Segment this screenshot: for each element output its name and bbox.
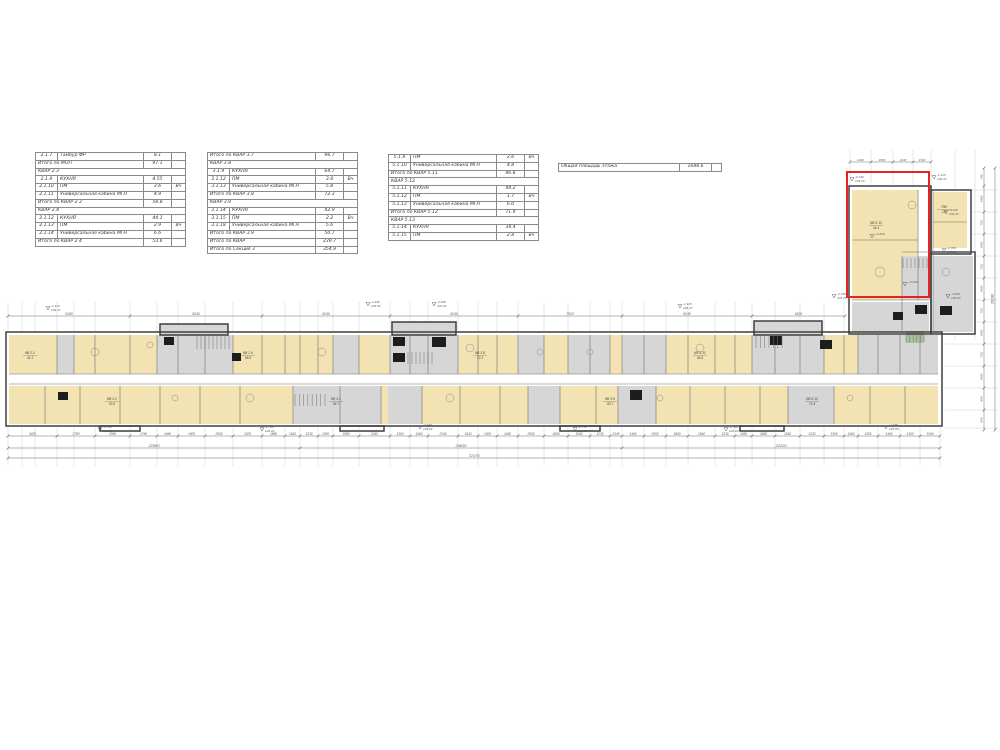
table-cell: 2.1.11 bbox=[36, 191, 58, 199]
area-table: 2.1.7Тамбур ФР8.1Итого по МОП97.1КВАР 2.… bbox=[35, 152, 185, 247]
table-row: 2.1.14Универсальная кабина МГН6.6 bbox=[36, 230, 186, 238]
area-table: Общая площадь этажа1688.6 bbox=[558, 163, 721, 172]
table-cell bbox=[344, 207, 358, 215]
table-cell: 3.1.13 bbox=[208, 184, 230, 192]
table-row: 3.1.9КУХНЯ64.7 bbox=[208, 168, 358, 176]
table-cell: 53.6 bbox=[144, 238, 172, 246]
dimension-label: 1230 bbox=[596, 432, 603, 436]
room-label: КВ 5.12 bbox=[806, 397, 818, 401]
table-row: 2.1.9КУХНЯ4.55 bbox=[36, 176, 186, 184]
core-block bbox=[858, 335, 938, 374]
dimension-label: 1890 bbox=[879, 158, 886, 162]
dimension-label: 1540 bbox=[289, 432, 296, 436]
table-cell bbox=[525, 209, 539, 217]
table-cell: Итого по КВАР 2.4 bbox=[36, 238, 144, 246]
table-cell bbox=[525, 170, 539, 178]
table-cell: 97.1 bbox=[144, 160, 172, 168]
table-cell: Тамбур ФР bbox=[58, 153, 144, 161]
dimension-label: 690 bbox=[980, 396, 984, 401]
table-cell: Итого по КВАР 3.7 bbox=[208, 153, 316, 161]
table-row: Итого по МОП97.1 bbox=[36, 160, 186, 168]
table-row: 5.1.10Универсальная кабина МГН4.8 bbox=[389, 162, 539, 170]
elevation-value: 104.47 bbox=[683, 306, 693, 310]
dimension-label: 2050 bbox=[650, 432, 658, 436]
table-cell: 5.1.10 bbox=[389, 162, 411, 170]
core-block bbox=[160, 324, 228, 335]
table-cell: 5.1.9 bbox=[389, 155, 411, 163]
dimension-label: 1490 bbox=[415, 432, 422, 436]
room-label: КВ 5.11 bbox=[694, 351, 706, 355]
dimension-label: 9180 bbox=[65, 312, 73, 316]
dimension-label: 3140 bbox=[612, 432, 619, 436]
table-cell: Универсальная кабина МГН bbox=[58, 230, 144, 238]
table-cell: Итого по КВАР 5.12 bbox=[389, 209, 497, 217]
table-cell bbox=[172, 160, 186, 168]
table-cell: КВАР 5.12 bbox=[389, 178, 539, 186]
table-cell: Универсальная кабина МГН bbox=[411, 162, 497, 170]
table-row: Итого по КВАР 5.1271.9 bbox=[389, 209, 539, 217]
table-row: 2.1.10ПМ3.6Вч bbox=[36, 184, 186, 192]
table-cell: КУХНЯ bbox=[411, 186, 497, 194]
table-row: 5.1.11КУХНЯ44.2 bbox=[389, 186, 539, 194]
building-outline bbox=[340, 426, 384, 431]
dimension-label: 750 bbox=[980, 220, 984, 225]
stair-green-block bbox=[906, 331, 924, 343]
table-cell: 354.9 bbox=[316, 246, 344, 254]
shaft-square bbox=[58, 392, 68, 400]
dimension-label: 3420 bbox=[980, 373, 984, 380]
dimension-label: 6520 bbox=[795, 312, 803, 316]
dimension-label: 1890 bbox=[673, 432, 680, 436]
dimension-label: 750 bbox=[980, 308, 984, 313]
dimension-label: 1490 bbox=[847, 432, 854, 436]
dimension-label: 1490 bbox=[885, 432, 892, 436]
dimension-label: 9240 bbox=[322, 312, 330, 316]
shaft-square bbox=[820, 340, 832, 349]
room-label: КВ 2.1 bbox=[25, 351, 35, 355]
dimension-label: 1300 bbox=[322, 432, 329, 436]
table-cell: 2.8 bbox=[497, 232, 525, 240]
elevation-value: 104.47 bbox=[51, 308, 61, 312]
shaft-square bbox=[893, 312, 903, 320]
table-cell: 3.1.15 bbox=[208, 215, 230, 223]
table-cell: Итого по МОП bbox=[36, 160, 144, 168]
elevation-value: 103.21 bbox=[947, 250, 957, 254]
table-row: Итого по КВАР 3.796.7 bbox=[208, 153, 358, 161]
table-cell: 2.9 bbox=[144, 223, 172, 231]
table-cell: 96.8 bbox=[497, 170, 525, 178]
table-row: Итого по КВАР 3.950.7 bbox=[208, 230, 358, 238]
dimension-label: 72170 bbox=[468, 453, 480, 458]
dimension-label: 1230 bbox=[721, 432, 728, 436]
shaft-square bbox=[940, 306, 952, 315]
dimension-label: 1490 bbox=[629, 432, 636, 436]
room-label: КВ 3.8 bbox=[475, 351, 485, 355]
table-row: Итого по КВАР 3.872.3 bbox=[208, 191, 358, 199]
room-label: КВ 2.2 bbox=[107, 397, 117, 401]
table-cell: 3.8 bbox=[316, 176, 344, 184]
elevation-mark-icon bbox=[432, 303, 436, 306]
table-cell: Итого по КВАР bbox=[208, 238, 316, 246]
table-row: Итого по КВАР 2.358.8 bbox=[36, 199, 186, 207]
dimension-label: 9240 bbox=[450, 312, 458, 316]
floor-plan-sheet: 3420278020501790149019002050220018901540… bbox=[0, 0, 1000, 750]
room-area: 96.7 bbox=[333, 402, 339, 406]
table-cell: Универсальная кабина МГН bbox=[230, 184, 316, 192]
shaft-square bbox=[630, 390, 642, 400]
table-row: 3.1.15ПМ2.2Вч bbox=[208, 215, 358, 223]
elevation-value: 103.43 bbox=[949, 212, 959, 216]
table-cell: Итого по КВАР 5.11 bbox=[389, 170, 497, 178]
core-block bbox=[528, 386, 560, 424]
table-row: 5.1.13Универсальная кабина МГН6.0 bbox=[389, 201, 539, 209]
table-cell: 2.1.12 bbox=[36, 215, 58, 223]
dimension-label: 7520 bbox=[566, 312, 574, 316]
table-cell: 3.1.18 bbox=[208, 223, 230, 231]
area-table: Итого по КВАР 3.796.7КВАР 3.83.1.9КУХНЯ6… bbox=[207, 152, 357, 254]
room-area: 58.8 bbox=[245, 356, 251, 360]
elevation-value: 103.26 bbox=[103, 429, 113, 433]
elevation-value: 103.54 bbox=[437, 304, 447, 308]
room-area: 71.9 bbox=[809, 402, 815, 406]
table-cell bbox=[344, 238, 358, 246]
dimension-label: 2240 bbox=[438, 432, 446, 436]
table-cell: Универсальная кабина МГН bbox=[58, 191, 144, 199]
elevation-mark-icon bbox=[724, 428, 728, 431]
elevation-mark-icon bbox=[932, 176, 936, 179]
shaft-square bbox=[915, 305, 927, 314]
table-cell bbox=[712, 164, 722, 172]
elevation-value: 104.47 bbox=[937, 177, 947, 181]
table-cell: Универсальная кабина МГН bbox=[411, 201, 497, 209]
table-cell: 2.1.7 bbox=[36, 153, 58, 161]
dimension-label: 1900 bbox=[188, 432, 195, 436]
table-cell: 3.1.14 bbox=[208, 207, 230, 215]
floor-plan-svg: 3420278020501790149019002050220018901540… bbox=[0, 0, 1000, 750]
core-block bbox=[752, 335, 824, 374]
table-cell bbox=[344, 230, 358, 238]
table-cell bbox=[344, 168, 358, 176]
table-cell: Вч bbox=[172, 184, 186, 192]
dimension-label: 1890 bbox=[760, 432, 767, 436]
elevation-value: 103.25 bbox=[578, 429, 588, 433]
table-row: КВАР 5.12 bbox=[389, 178, 539, 186]
dimension-label: 2240 bbox=[370, 432, 378, 436]
room-area: 72.3 bbox=[477, 356, 483, 360]
table-row: 5.1.9ПМ2.6Вч bbox=[389, 155, 539, 163]
table-row: КВАР 3.8 bbox=[208, 160, 358, 168]
table-row: КВАР 5.13 bbox=[389, 217, 539, 225]
elevation-value: 103.54 bbox=[371, 304, 381, 308]
table-cell: ПМ bbox=[411, 193, 497, 201]
table-cell: Итого по КВАР 3.9 bbox=[208, 230, 316, 238]
dimension-label: 1540 bbox=[926, 432, 933, 436]
table-cell: 3.1.12 bbox=[208, 176, 230, 184]
table-cell: КВАР 3.8 bbox=[208, 160, 358, 168]
table-row: 3.1.18Универсальная кабина МГН5.6 bbox=[208, 223, 358, 231]
dimension-label: 1890 bbox=[342, 432, 349, 436]
table-cell: Общая площадь этажа bbox=[559, 164, 680, 172]
table-cell bbox=[525, 201, 539, 209]
table-row: КВАР 2.3 bbox=[36, 168, 186, 176]
core-block bbox=[333, 335, 359, 374]
table-cell bbox=[344, 246, 358, 254]
dimension-label: 2050 bbox=[214, 432, 222, 436]
table-cell: 6.0 bbox=[497, 201, 525, 209]
shaft-square bbox=[393, 337, 405, 346]
shaft-square bbox=[232, 353, 241, 361]
table-cell: 34.4 bbox=[497, 225, 525, 233]
shaft-square bbox=[432, 337, 446, 347]
table-cell: Универсальная кабина МГН bbox=[230, 223, 316, 231]
dimension-label: 1300 bbox=[484, 432, 491, 436]
dimension-label: 3420 bbox=[980, 195, 984, 202]
table-row: 2.1.11Универсальная кабина МГН4.9 bbox=[36, 191, 186, 199]
room-label: КВ 3.9 bbox=[605, 397, 615, 401]
table-cell: КВАР 2.4 bbox=[36, 207, 186, 215]
dimension-label: 9240 bbox=[192, 312, 200, 316]
table-cell bbox=[344, 184, 358, 192]
table-cell bbox=[525, 186, 539, 194]
elevation-mark-icon bbox=[46, 307, 50, 310]
room-label: КВ 3.1 bbox=[331, 397, 341, 401]
table-cell bbox=[172, 153, 186, 161]
room-area: 44.1 bbox=[27, 356, 33, 360]
table-cell: 5.8 bbox=[316, 184, 344, 192]
shaft-square bbox=[393, 353, 405, 362]
table-cell: КУХНЯ bbox=[58, 215, 144, 223]
table-row: 3.1.13Универсальная кабина МГН5.8 bbox=[208, 184, 358, 192]
table-row: 3.1.12ПМ3.8Вч bbox=[208, 176, 358, 184]
table-row: 5.1.14КУХНЯ34.4 bbox=[389, 225, 539, 233]
dimension-label: 1540 bbox=[464, 432, 471, 436]
table-cell: 8.1 bbox=[144, 153, 172, 161]
dimension-label: 1540 bbox=[698, 432, 705, 436]
table-row: Итого по КВАР239.7 bbox=[208, 238, 358, 246]
table-cell bbox=[172, 230, 186, 238]
table-cell: 2.2 bbox=[316, 215, 344, 223]
table-cell: 42.9 bbox=[316, 207, 344, 215]
dimension-label: 1540 bbox=[784, 432, 791, 436]
elevation-value: 102.63 bbox=[951, 296, 961, 300]
table-cell bbox=[344, 191, 358, 199]
table-cell: 4.55 bbox=[144, 176, 172, 184]
table-cell: 44.1 bbox=[144, 215, 172, 223]
table-cell bbox=[172, 191, 186, 199]
table-cell: ПМ bbox=[411, 232, 497, 240]
table-cell: Вч bbox=[525, 232, 539, 240]
elevation-value: 103.24 bbox=[729, 429, 739, 433]
core-block bbox=[392, 322, 456, 335]
table-row: 5.1.15ПМ2.8Вч bbox=[389, 232, 539, 240]
elevation-value: 103.55 bbox=[889, 427, 899, 431]
table-cell: 50.7 bbox=[316, 230, 344, 238]
table-cell: 5.1.12 bbox=[389, 193, 411, 201]
room-label: КВ 2.4 bbox=[243, 351, 253, 355]
table-cell: КУХНЯ bbox=[411, 225, 497, 233]
table-cell: 71.9 bbox=[497, 209, 525, 217]
table-cell: 3.6 bbox=[144, 184, 172, 192]
dimension-label: 640 bbox=[980, 417, 984, 422]
table-cell bbox=[344, 153, 358, 161]
dimension-label: 9240 bbox=[683, 312, 691, 316]
table-cell bbox=[172, 176, 186, 184]
shaft-square bbox=[164, 337, 174, 345]
table-cell: 58.8 bbox=[144, 199, 172, 207]
table-row: 3.1.14КУХНЯ42.9 bbox=[208, 207, 358, 215]
table-cell: 5.1.13 bbox=[389, 201, 411, 209]
dimension-label: 1300 bbox=[396, 432, 403, 436]
table-cell bbox=[172, 199, 186, 207]
table-cell: 239.7 bbox=[316, 238, 344, 246]
table-cell: КУХНЯ bbox=[230, 207, 316, 215]
dimension-label: 1300 bbox=[830, 432, 837, 436]
dimension-label: 2780 bbox=[71, 432, 79, 436]
table-cell: 4.8 bbox=[497, 162, 525, 170]
table-cell: КВАР 3.9 bbox=[208, 199, 358, 207]
dimension-label: 1490 bbox=[504, 432, 511, 436]
table-cell: 5.1.11 bbox=[389, 186, 411, 194]
table-cell: Вч bbox=[525, 193, 539, 201]
elevation-mark-icon bbox=[832, 295, 836, 298]
dimension-label: 1490 bbox=[740, 432, 747, 436]
dimension-label: 740 bbox=[980, 174, 984, 179]
dimension-label: 1790 bbox=[140, 432, 147, 436]
dimension-label: 2200 bbox=[243, 432, 251, 436]
table-cell: 1.7 bbox=[497, 193, 525, 201]
table-cell: 2.1.14 bbox=[36, 230, 58, 238]
table-cell: ПМ bbox=[230, 176, 316, 184]
dimension-label: 1890 bbox=[552, 432, 559, 436]
dimension-label: 2050 bbox=[526, 432, 534, 436]
elevation-value: 103.24 bbox=[265, 429, 275, 433]
table-row: 2.1.13ПМ2.9Вч bbox=[36, 223, 186, 231]
table-row: 2.1.7Тамбур ФР8.1 bbox=[36, 153, 186, 161]
dimension-label: 3420 bbox=[980, 285, 984, 292]
room-area: 96.8 bbox=[697, 356, 703, 360]
core-block bbox=[518, 335, 544, 374]
table-cell bbox=[172, 238, 186, 246]
table-cell: ПМ bbox=[58, 184, 144, 192]
table-row: Итого по КВАР 2.453.6 bbox=[36, 238, 186, 246]
core-block bbox=[568, 335, 610, 374]
room-area: 50.7 bbox=[607, 402, 613, 406]
table-cell bbox=[344, 223, 358, 231]
room-area: 2.8 bbox=[941, 210, 947, 214]
table-cell: 72.3 bbox=[316, 191, 344, 199]
shaft-square bbox=[770, 336, 782, 345]
table-cell: 64.7 bbox=[316, 168, 344, 176]
dimension-label: 3420 bbox=[980, 329, 984, 336]
table-cell: 2.1.10 bbox=[36, 184, 58, 192]
table-cell: 1688.6 bbox=[680, 164, 712, 172]
table-cell: Итого по КВАР 2.3 bbox=[36, 199, 144, 207]
table-row: КВАР 3.9 bbox=[208, 199, 358, 207]
room-area: 53.6 bbox=[109, 402, 115, 406]
table-cell: КУХНЯ bbox=[230, 168, 316, 176]
dimension-label: 24830 bbox=[454, 443, 467, 448]
table-cell: ПМ bbox=[411, 155, 497, 163]
table-row: Общая площадь этажа1688.6 bbox=[559, 164, 722, 172]
table-cell: 4.9 bbox=[144, 191, 172, 199]
dimension-label: 1300 bbox=[864, 432, 871, 436]
table-cell bbox=[525, 225, 539, 233]
table-row: КВАР 2.4 bbox=[36, 207, 186, 215]
dimension-label: 1230 bbox=[808, 432, 815, 436]
dimension-label: 2240 bbox=[899, 158, 907, 162]
dimension-label: 1230 bbox=[305, 432, 312, 436]
table-cell: КВАР 5.13 bbox=[389, 217, 539, 225]
table-cell: 5.1.14 bbox=[389, 225, 411, 233]
table-cell bbox=[525, 162, 539, 170]
dimension-label: 1300 bbox=[906, 432, 913, 436]
elevation-value: 103.54 bbox=[423, 427, 433, 431]
table-cell: 5.1.15 bbox=[389, 232, 411, 240]
table-cell: 6.6 bbox=[144, 230, 172, 238]
table-cell: 2.1.13 bbox=[36, 223, 58, 231]
dimension-label: 1540 bbox=[919, 158, 926, 162]
table-cell: Вч bbox=[344, 176, 358, 184]
dimension-label: 3420 bbox=[29, 432, 36, 436]
table-cell: 3.1.9 bbox=[208, 168, 230, 176]
room-label: ПМ bbox=[941, 205, 946, 209]
table-row: 5.1.12ПМ1.7Вч bbox=[389, 193, 539, 201]
table-cell: 96.7 bbox=[316, 153, 344, 161]
table-cell: 2.1.9 bbox=[36, 176, 58, 184]
table-cell: 44.2 bbox=[497, 186, 525, 194]
dimension-label: 750 bbox=[980, 352, 984, 357]
table-cell bbox=[172, 215, 186, 223]
table-row: 2.1.12КУХНЯ44.1 bbox=[36, 215, 186, 223]
table-cell: Вч bbox=[172, 223, 186, 231]
table-cell: Вч bbox=[525, 155, 539, 163]
dimension-label: 3420 bbox=[980, 241, 984, 248]
area-table: 5.1.9ПМ2.6Вч5.1.10Универсальная кабина М… bbox=[388, 154, 538, 241]
table-cell: Итого по КВАР 3.8 bbox=[208, 191, 316, 199]
building-outline bbox=[740, 426, 784, 431]
dimension-label: 2240 bbox=[856, 158, 864, 162]
apartment-block bbox=[933, 192, 967, 248]
table-cell: ПМ bbox=[230, 215, 316, 223]
highlight-rectangle[interactable] bbox=[846, 171, 930, 298]
dimension-label: 22580 bbox=[147, 443, 160, 448]
dimension-label: 1490 bbox=[164, 432, 171, 436]
dimension-label: 750 bbox=[980, 264, 984, 269]
core-block bbox=[754, 321, 822, 335]
table-cell: ПМ bbox=[58, 223, 144, 231]
table-cell: 5.6 bbox=[316, 223, 344, 231]
elevation-mark-icon bbox=[678, 305, 682, 308]
core-block bbox=[57, 335, 74, 374]
core-block bbox=[388, 386, 422, 424]
table-cell: 2.6 bbox=[497, 155, 525, 163]
table-cell: Итого по Секция 3 bbox=[208, 246, 316, 254]
table-cell: КУХНЯ bbox=[58, 176, 144, 184]
table-row: Итого по КВАР 5.1196.8 bbox=[389, 170, 539, 178]
table-row: Итого по Секция 3354.9 bbox=[208, 246, 358, 254]
dimension-label: 24120 bbox=[774, 443, 787, 448]
elevation-mark-icon bbox=[366, 303, 370, 306]
table-cell: Вч bbox=[344, 215, 358, 223]
dimension-label: 26200 bbox=[991, 294, 995, 305]
table-cell: КВАР 2.3 bbox=[36, 168, 186, 176]
